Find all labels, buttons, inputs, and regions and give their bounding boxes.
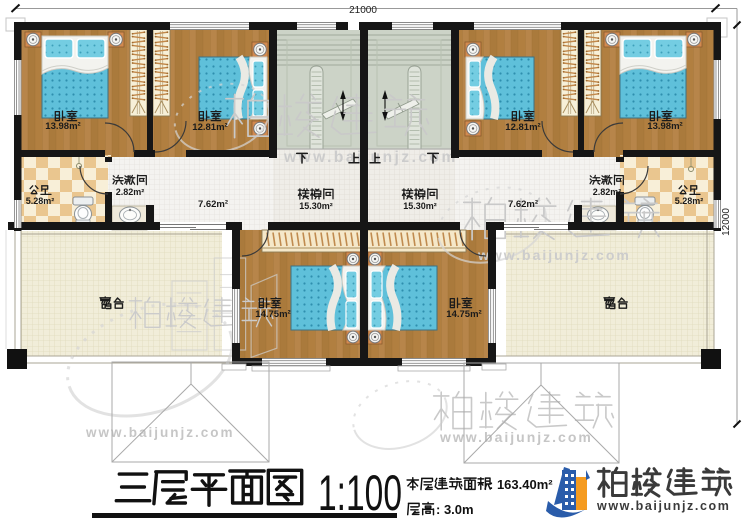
svg-text:12.81m²: 12.81m²	[192, 122, 227, 133]
svg-text:www.baijunjz.com: www.baijunjz.com	[85, 425, 235, 440]
svg-text:12000: 12000	[721, 208, 732, 236]
svg-text:2.82m²: 2.82m²	[116, 187, 145, 197]
svg-text:www.baijunjz.com: www.baijunjz.com	[596, 499, 730, 513]
svg-text:15.30m²: 15.30m²	[299, 201, 333, 211]
svg-text:: 3.0m: : 3.0m	[436, 502, 474, 517]
svg-text:14.75m²: 14.75m²	[446, 309, 481, 320]
svg-text:1:100: 1:100	[318, 465, 402, 521]
svg-text:5.28m²: 5.28m²	[26, 196, 55, 206]
svg-text:: 163.40m²: : 163.40m²	[489, 477, 553, 492]
svg-text:5.28m²: 5.28m²	[675, 196, 704, 206]
svg-text:2.82m²: 2.82m²	[593, 187, 622, 197]
svg-text:15.30m²: 15.30m²	[403, 201, 437, 211]
svg-text:www.baijunjz.com: www.baijunjz.com	[477, 247, 631, 263]
svg-text:14.75m²: 14.75m²	[255, 309, 290, 320]
svg-text:12.81m²: 12.81m²	[505, 122, 540, 133]
svg-text:7.62m²: 7.62m²	[198, 199, 228, 210]
svg-text:13.98m²: 13.98m²	[45, 121, 80, 132]
svg-text:21000: 21000	[349, 5, 377, 16]
svg-text:www.baijunjz.com: www.baijunjz.com	[439, 429, 593, 445]
svg-text:13.98m²: 13.98m²	[647, 121, 682, 132]
svg-text:7.62m²: 7.62m²	[508, 199, 538, 210]
